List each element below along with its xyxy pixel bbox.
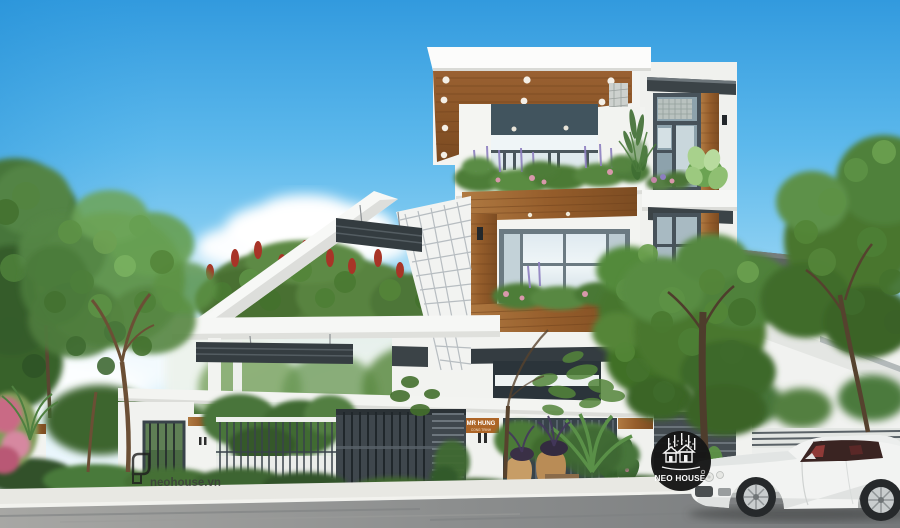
svg-text:CONG TRINH: CONG TRINH (471, 428, 492, 432)
svg-text:MR HUNG: MR HUNG (467, 421, 496, 427)
svg-text:neohouse.vn: neohouse.vn (150, 477, 221, 489)
svg-text:NEO HOUSE: NEO HOUSE (655, 474, 706, 483)
